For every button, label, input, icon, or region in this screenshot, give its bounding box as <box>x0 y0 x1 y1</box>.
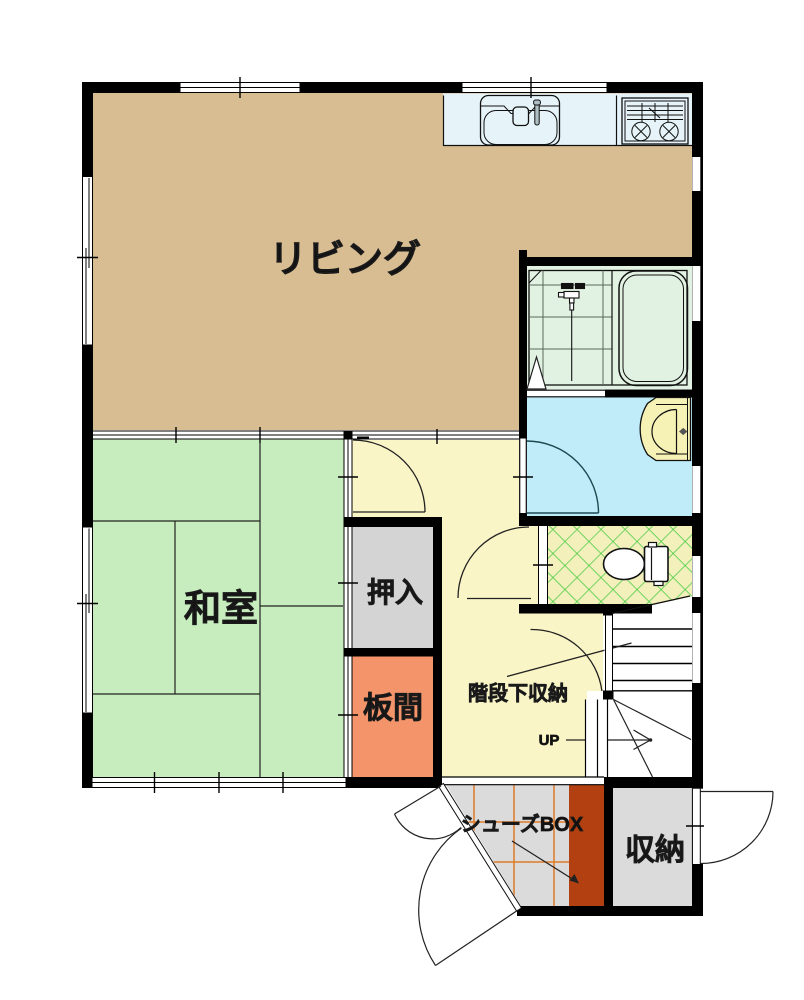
svg-text:階段下収納: 階段下収納 <box>468 681 568 705</box>
svg-text:収納: 収納 <box>625 834 685 867</box>
svg-text:板間: 板間 <box>363 692 423 725</box>
svg-text:和室: 和室 <box>184 587 258 629</box>
svg-text:シューズBOX: シューズBOX <box>461 812 584 836</box>
svg-text:押入: 押入 <box>367 576 423 608</box>
svg-text:リビング: リビング <box>269 239 421 281</box>
svg-text:UP: UP <box>539 732 560 749</box>
